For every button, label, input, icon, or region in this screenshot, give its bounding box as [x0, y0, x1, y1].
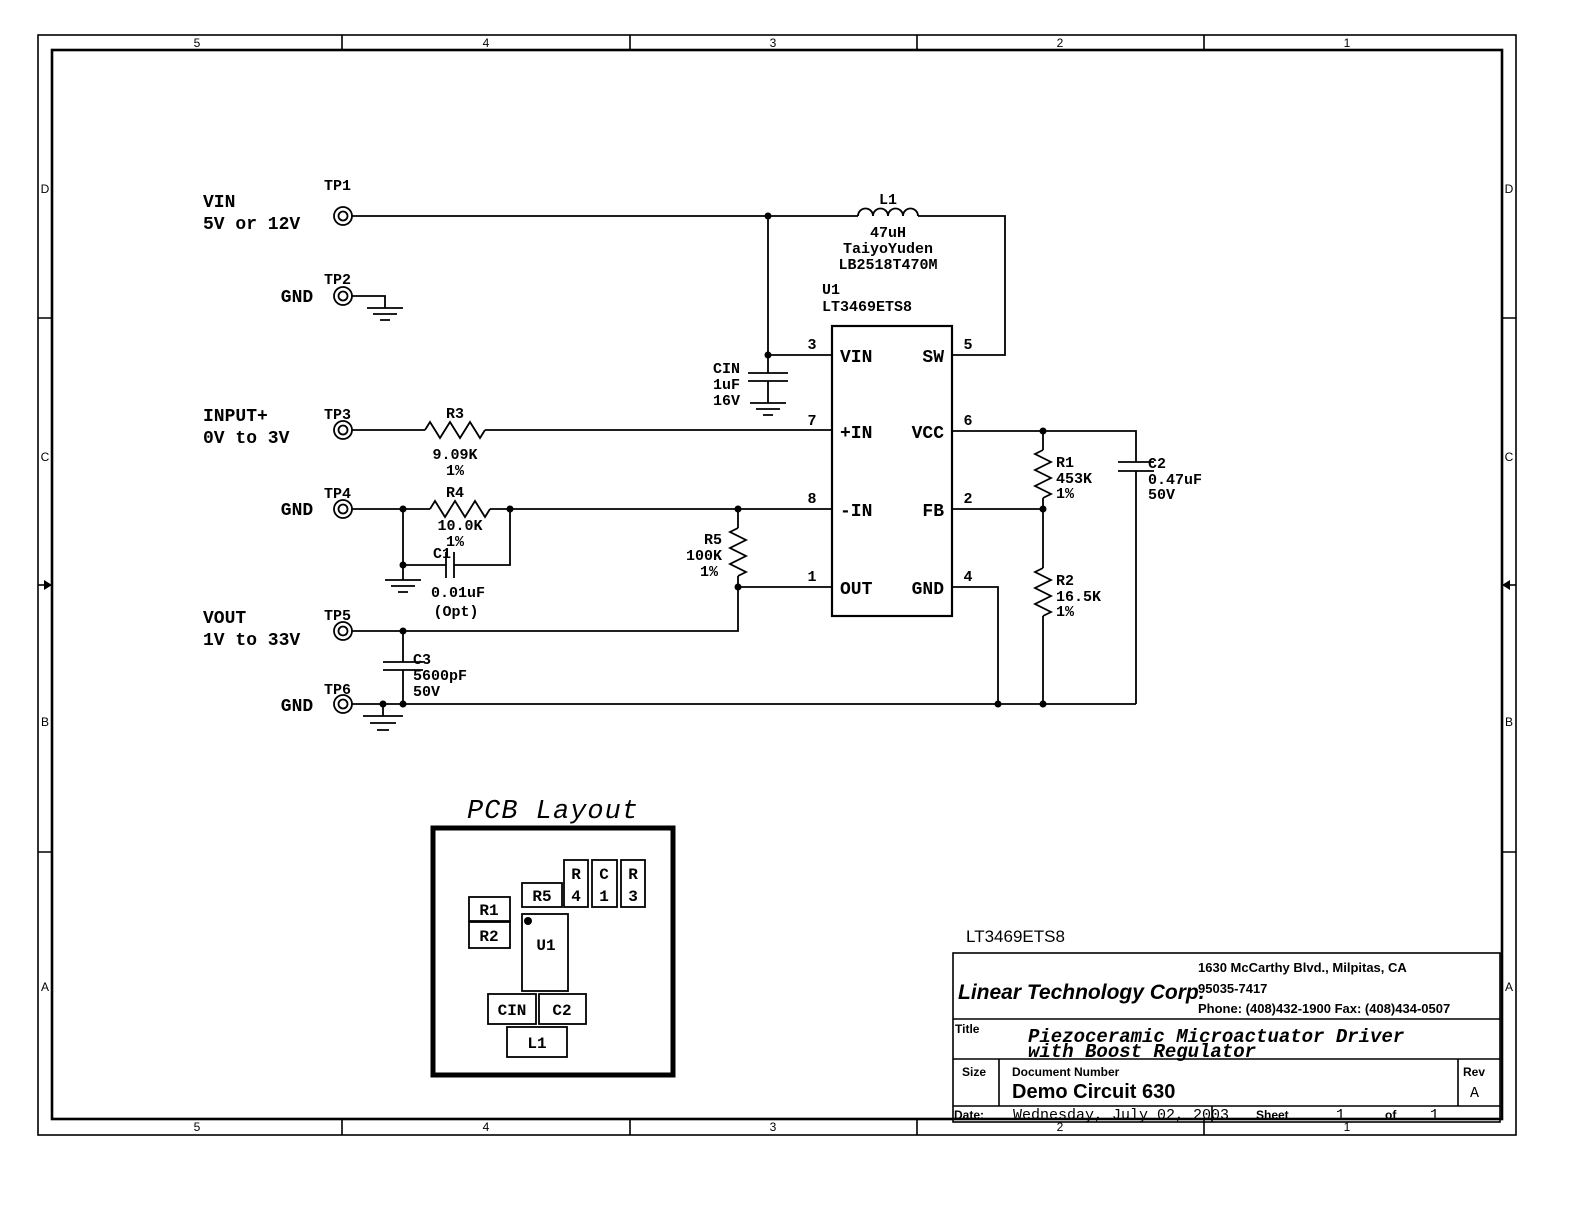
ic-partnumber: LT3469ETS8 — [822, 299, 912, 316]
company-name: Linear Technology Corp. — [958, 981, 1205, 1004]
cin-voltage: 16V — [713, 393, 740, 410]
zone-col-top: 3 — [770, 36, 777, 50]
c3-ref: C3 — [413, 652, 431, 669]
label-gnd-tp2: GND — [281, 288, 314, 308]
pcb-comp-r1: R1 — [469, 897, 510, 921]
pcb-comp-cin: CIN — [488, 994, 536, 1024]
r5-tolerance: 1% — [700, 564, 719, 581]
ic-pin-name-vcc: VCC — [912, 424, 945, 444]
zone-col-top: 2 — [1057, 36, 1064, 50]
ground-symbol-tp2 — [367, 308, 403, 320]
pcb-comp-c1: C 1 — [592, 860, 617, 907]
component-labels: L1 47uH TaiyoYuden LB2518T470M CIN 1uF 1… — [413, 192, 1202, 701]
svg-text:C2: C2 — [552, 1002, 571, 1020]
date-value: Wednesday, July 02, 2003 — [1013, 1107, 1229, 1124]
svg-text:1: 1 — [599, 888, 609, 906]
ic-pin-number-5: 5 — [963, 337, 972, 354]
ic-u1: U1 LT3469ETS8 VIN +IN -IN OUT SW VCC FB … — [807, 282, 972, 616]
svg-text:R1: R1 — [479, 902, 498, 920]
svg-text:U1: U1 — [536, 937, 555, 955]
label-vout-range: 1V to 33V — [203, 631, 300, 651]
r3-value: 9.09K — [432, 447, 477, 464]
label-tp3: TP3 — [324, 407, 351, 424]
document-number: Demo Circuit 630 — [1012, 1081, 1175, 1103]
r3-ref: R3 — [446, 406, 464, 423]
ic-pin-name-out: OUT — [840, 580, 873, 600]
document-number-label: Document Number — [1012, 1065, 1120, 1079]
pcb-comp-r4: R 4 — [564, 860, 588, 907]
r5-ref: R5 — [704, 532, 722, 549]
date-label: Date: — [954, 1108, 984, 1122]
ic-pin-number-6: 6 — [963, 413, 972, 430]
label-tp4: TP4 — [324, 486, 351, 503]
ic-pin-number-4: 4 — [963, 569, 972, 586]
title-label: Title — [955, 1022, 980, 1036]
ic-pin-name-plus-in: +IN — [840, 424, 872, 444]
zone-col-top: 5 — [194, 36, 201, 50]
l1-partnumber: LB2518T470M — [838, 257, 937, 274]
zone-row-left: B — [41, 715, 49, 729]
net-labels: VIN 5V or 12V TP1 GND TP2 INPUT+ 0V to 3… — [203, 178, 351, 717]
sheet-of-label: of — [1385, 1108, 1397, 1122]
label-gnd-tp4: GND — [281, 501, 314, 521]
label-vin-range: 5V or 12V — [203, 215, 300, 235]
label-input-range: 0V to 3V — [203, 429, 290, 449]
svg-text:R5: R5 — [532, 888, 551, 906]
l1-value: 47uH — [870, 225, 906, 242]
schematic-title-line2: with Boost Regulator — [1028, 1041, 1257, 1063]
svg-text:R2: R2 — [479, 928, 498, 946]
ic-pin-number-8: 8 — [807, 491, 816, 508]
svg-text:L1: L1 — [527, 1035, 546, 1053]
zone-row-right: B — [1505, 715, 1513, 729]
resistor-r1-symbol — [1035, 450, 1051, 498]
r3-tolerance: 1% — [446, 463, 465, 480]
pcb-comp-u1: U1 — [522, 914, 568, 991]
resistor-r2-symbol — [1035, 568, 1051, 616]
junction-dots — [380, 213, 1047, 708]
c1-ref: C1 — [433, 546, 451, 563]
ic-refdes: U1 — [822, 282, 840, 299]
label-vout: VOUT — [203, 609, 246, 629]
schematic-sheet: 5 4 3 2 1 5 4 3 2 1 D C B A D C B A — [0, 0, 1584, 1224]
svg-text:4: 4 — [571, 888, 581, 906]
zone-col-top: 1 — [1344, 36, 1351, 50]
l1-mfr: TaiyoYuden — [843, 241, 933, 258]
label-input: INPUT+ — [203, 407, 268, 427]
pcb-u1-pin1-dot — [524, 917, 532, 925]
cin-ref: CIN — [713, 361, 740, 378]
sheet-center-arrow-right — [1502, 580, 1516, 590]
inductor-l1-symbol — [858, 209, 918, 216]
ground-symbol-cin — [750, 403, 786, 415]
ic-pin-number-2: 2 — [963, 491, 972, 508]
pcb-layout: PCB Layout R5 R 4 C 1 R 3 R1 R2 — [433, 797, 673, 1075]
testpoint-tp1 — [334, 207, 352, 225]
zone-row-right: D — [1505, 182, 1514, 196]
c1-value: 0.01uF — [431, 585, 485, 602]
zone-row-left: C — [41, 450, 50, 464]
resistor-r4-symbol — [430, 501, 490, 517]
r2-tolerance: 1% — [1056, 604, 1075, 621]
zone-col-top: 4 — [483, 36, 490, 50]
pcb-comp-c2: C2 — [539, 994, 586, 1024]
label-gnd-tp6: GND — [281, 697, 314, 717]
label-tp1: TP1 — [324, 178, 351, 195]
zone-row-left: D — [41, 182, 50, 196]
c1-note: (Opt) — [433, 604, 478, 621]
sheet-label: Sheet — [1256, 1108, 1289, 1122]
c2-voltage: 50V — [1148, 487, 1175, 504]
ic-pin-name-sw: SW — [922, 348, 944, 368]
ground-symbol-tp6 — [363, 716, 403, 730]
svg-text:C: C — [599, 866, 609, 884]
ground-symbol-c1 — [385, 580, 421, 592]
pcb-comp-l1: L1 — [507, 1027, 567, 1057]
label-vin: VIN — [203, 193, 235, 213]
pcb-comp-r5: R5 — [522, 883, 562, 907]
zone-row-left: A — [41, 980, 49, 994]
r5-value: 100K — [686, 548, 722, 565]
company-address-line2: 95035-7417 — [1198, 981, 1267, 996]
pcb-comp-r3: R 3 — [621, 860, 645, 907]
sheet-number: 1 — [1336, 1107, 1345, 1124]
title-block-partnumber: LT3469ETS8 — [966, 927, 1065, 946]
l1-ref: L1 — [879, 192, 897, 209]
r2-ref: R2 — [1056, 573, 1074, 590]
testpoint-tp2 — [334, 287, 352, 305]
zone-row-right: C — [1505, 450, 1514, 464]
zone-row-right: A — [1505, 980, 1513, 994]
pcb-comp-r2: R2 — [469, 922, 510, 948]
r1-ref: R1 — [1056, 455, 1074, 472]
title-block: LT3469ETS8 Linear Technology Corp. 1630 … — [953, 927, 1500, 1124]
c3-voltage: 50V — [413, 684, 440, 701]
ic-pin-name-fb: FB — [922, 502, 944, 522]
size-label: Size — [962, 1065, 986, 1079]
wires — [352, 216, 1136, 716]
svg-text:R: R — [628, 866, 638, 884]
company-address-line3: Phone: (408)432-1900 Fax: (408)434-0507 — [1198, 1001, 1450, 1016]
sheet-center-arrow-left — [38, 580, 52, 590]
svg-text:R: R — [571, 866, 581, 884]
r4-ref: R4 — [446, 485, 464, 502]
label-tp6: TP6 — [324, 682, 351, 699]
label-tp2: TP2 — [324, 272, 351, 289]
c2-ref: C2 — [1148, 456, 1166, 473]
ic-pin-name-gnd: GND — [912, 580, 945, 600]
zone-col-bottom: 3 — [770, 1120, 777, 1134]
resistor-r3-symbol — [425, 422, 485, 438]
svg-text:CIN: CIN — [498, 1002, 527, 1020]
r1-tolerance: 1% — [1056, 486, 1075, 503]
svg-text:3: 3 — [628, 888, 638, 906]
company-address-line1: 1630 McCarthy Blvd., Milpitas, CA — [1198, 960, 1407, 975]
r4-value: 10.0K — [437, 518, 482, 535]
zone-col-bottom: 4 — [483, 1120, 490, 1134]
ic-pin-number-3: 3 — [807, 337, 816, 354]
cin-value: 1uF — [713, 377, 740, 394]
rev-value: A — [1470, 1085, 1479, 1102]
ic-pin-name-vin: VIN — [840, 348, 872, 368]
ic-pin-name-minus-in: -IN — [840, 502, 872, 522]
label-tp5: TP5 — [324, 608, 351, 625]
ic-pin-number-1: 1 — [807, 569, 816, 586]
capacitor-cin-symbol — [748, 373, 788, 381]
ic-pin-number-7: 7 — [807, 413, 816, 430]
pcb-layout-title: PCB Layout — [467, 797, 639, 827]
resistor-r5-symbol — [730, 528, 746, 576]
zone-col-bottom: 5 — [194, 1120, 201, 1134]
rev-label: Rev — [1463, 1065, 1485, 1079]
c3-value: 5600pF — [413, 668, 467, 685]
sheet-total: 1 — [1430, 1107, 1439, 1124]
